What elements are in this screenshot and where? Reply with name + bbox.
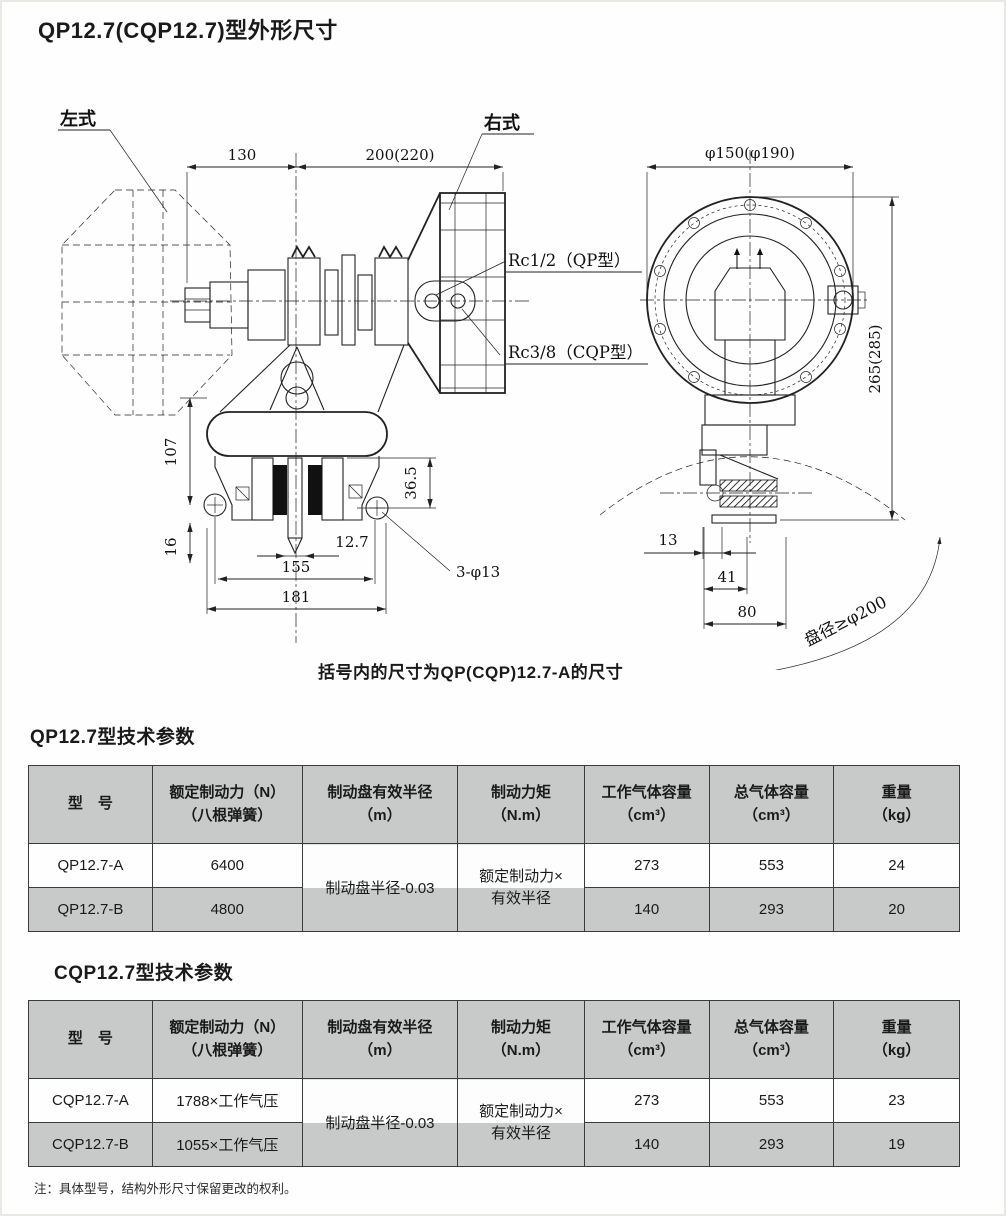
col-header-total-volume: 总气体容量（cm³） [709,1001,834,1079]
technical-drawing: 左式 右式 Rc1/2（QP型） Rc3/8（CQP型） 盘径≥φ200 130… [0,95,1006,670]
dim-80: 80 [737,603,756,621]
table2-title: CQP12.7型技术参数 [54,958,233,985]
drawing-caption: 括号内的尺寸为QP(CQP)12.7-A的尺寸 [318,658,623,683]
table-header-row: 型 号 额定制动力（N）（八根弹簧） 制动盘有效半径（m） 制动力矩（N.m） … [29,1001,960,1079]
dim-130: 130 [228,146,257,164]
dim-107: 107 [162,438,180,467]
pad-section-bottom [720,496,777,507]
datasheet-page: QP12.7(CQP12.7)型外形尺寸 [0,0,1006,1216]
dashed-housing-outline [62,190,232,415]
col-header-work-volume: 工作气体容量（cm³） [584,1001,709,1079]
col-header-total-volume: 总气体容量（cm³） [709,766,834,844]
table1-title: QP12.7型技术参数 [30,722,195,749]
rc-qp-label: Rc1/2（QP型） [508,251,630,270]
col-header-work-volume: 工作气体容量（cm³） [584,766,709,844]
dim-181: 181 [282,588,311,606]
pad-section-top [720,480,777,491]
cell-total-volume: 293 [709,888,834,932]
disc-leader-arc [700,537,940,670]
cqp-spec-table: 型 号 额定制动力（N）（八根弹簧） 制动盘有效半径（m） 制动力矩（N.m） … [28,1000,960,1167]
disc-plate [288,458,302,538]
col-header-weight: 重量（kg） [834,1001,960,1079]
dim-3-phi13: 3-φ13 [456,563,500,581]
dim-13: 13 [658,531,677,549]
centerlines [170,150,870,643]
cell-work-volume: 140 [584,1123,709,1167]
col-header-model: 型 号 [29,766,153,844]
cell-force: 1788×工作气压 [152,1079,302,1123]
side-view [600,197,940,670]
cell-force: 6400 [152,844,302,888]
dim-265-285: 265(285) [866,325,884,394]
cell-work-volume: 273 [584,844,709,888]
cell-work-volume: 273 [584,1079,709,1123]
col-header-force: 额定制动力（N）（八根弹簧） [152,1001,302,1079]
table-row: CQP12.7-A 1788×工作气压 制动盘半径-0.03 额定制动力×有效半… [29,1079,960,1123]
cell-model: CQP12.7-B [29,1123,153,1167]
cell-weight: 23 [834,1079,960,1123]
cell-model: QP12.7-B [29,888,153,932]
cell-radius-merged: 制动盘半径-0.03 [302,1079,457,1167]
dim-200-220: 200(220) [366,146,435,164]
spring-symbol-right [379,247,402,257]
cell-model: CQP12.7-A [29,1079,153,1123]
qp-spec-table: 型 号 额定制动力（N）（八根弹簧） 制动盘有效半径（m） 制动力矩（N.m） … [28,765,960,932]
actuator-assembly [185,247,408,345]
dim-41: 41 [717,568,736,586]
cell-model: QP12.7-A [29,844,153,888]
cell-radius-merged: 制动盘半径-0.03 [302,844,457,932]
footnote: 注：具体型号，结构外形尺寸保留更改的权利。 [34,1178,297,1197]
crossbar [207,412,387,456]
dim-36-5: 36.5 [402,466,420,499]
front-view [62,190,506,553]
dim-dia150-190: φ150(φ190) [705,144,795,162]
col-header-radius: 制动盘有效半径（m） [302,1001,457,1079]
left-type-label: 左式 [60,108,96,129]
table-row: QP12.7-A 6400 制动盘半径-0.03 额定制动力×有效半径 273 … [29,844,960,888]
cell-weight: 24 [834,844,960,888]
page-title: QP12.7(CQP12.7)型外形尺寸 [38,13,338,45]
cell-total-volume: 293 [709,1123,834,1167]
cell-force: 1055×工作气压 [152,1123,302,1167]
dim-12-7: 12.7 [335,533,368,551]
col-header-torque: 制动力矩（N.m） [458,766,585,844]
spring-symbol-left [292,247,315,257]
disc-diameter-label: 盘径≥φ200 [801,592,890,650]
cell-total-volume: 553 [709,844,834,888]
col-header-model: 型 号 [29,1001,153,1079]
right-type-label: 右式 [484,112,520,133]
cell-weight: 20 [834,888,960,932]
col-header-weight: 重量（kg） [834,766,960,844]
cell-weight: 19 [834,1123,960,1167]
cell-torque-merged: 额定制动力×有效半径 [458,844,585,932]
cone-housing [408,193,506,393]
brake-pad-left [273,465,287,515]
cell-torque-merged: 额定制动力×有效半径 [458,1079,585,1167]
col-header-radius: 制动盘有效半径（m） [302,766,457,844]
dim-16: 16 [162,537,180,556]
brake-pad-right [308,465,322,515]
dim-155: 155 [282,558,311,576]
table-header-row: 型 号 额定制动力（N）（八根弹簧） 制动盘有效半径（m） 制动力矩（N.m） … [29,766,960,844]
cell-force: 4800 [152,888,302,932]
cell-total-volume: 553 [709,1079,834,1123]
col-header-torque: 制动力矩（N.m） [458,1001,585,1079]
caliper-arms [220,345,404,412]
col-header-force: 额定制动力（N）（八根弹簧） [152,766,302,844]
rc-cqp-label: Rc3/8（CQP型） [508,343,643,362]
cell-work-volume: 140 [584,888,709,932]
